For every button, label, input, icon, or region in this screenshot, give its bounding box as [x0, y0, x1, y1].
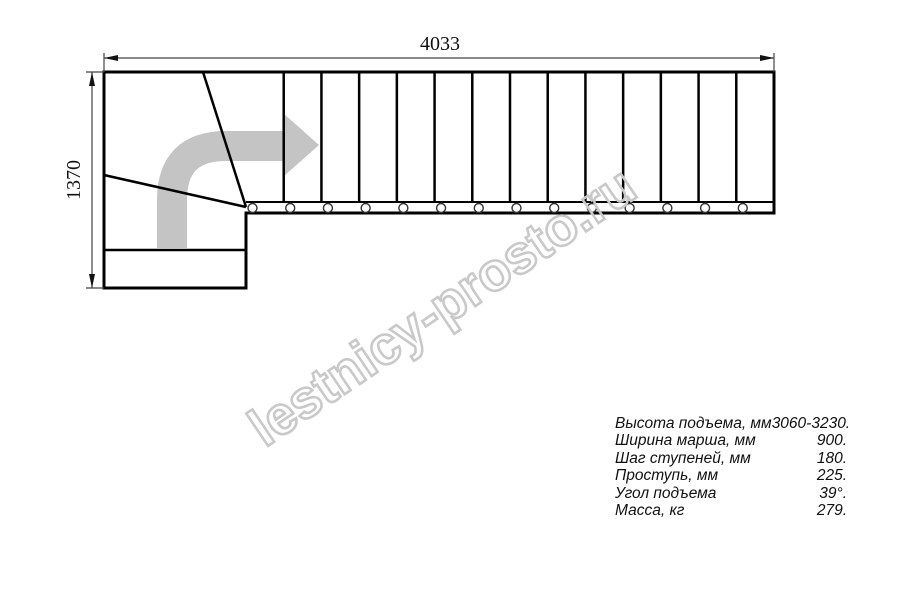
- baluster-circle: [663, 204, 672, 213]
- spec-value: 39°.: [819, 485, 847, 502]
- baluster-circle: [437, 204, 446, 213]
- spec-value: 900.: [817, 432, 847, 449]
- direction-arrow-head: [283, 113, 319, 177]
- dimension-arrow-right: [760, 55, 774, 61]
- dimension-arrow-left: [104, 55, 118, 61]
- staircase-outline: [104, 72, 774, 288]
- specs-table: Высота подъема, мм 3060-3230. Ширина мар…: [615, 415, 847, 519]
- spec-row: Высота подъема, мм 3060-3230.: [615, 415, 847, 432]
- baluster-circle: [512, 204, 521, 213]
- baluster-circle: [701, 204, 710, 213]
- spec-row: Масса, кг 279.: [615, 502, 847, 519]
- spec-row: Ширина марша, мм 900.: [615, 432, 847, 449]
- spec-label: Угол подъема: [615, 485, 716, 502]
- baluster-circle: [323, 204, 332, 213]
- spec-row: Угол подъема 39°.: [615, 485, 847, 502]
- spec-label: Шаг ступеней, мм: [615, 450, 751, 467]
- width-dimension-label: 1370: [63, 160, 85, 200]
- dimension-left: 1370: [63, 72, 104, 288]
- spec-value: 3060-3230.: [772, 415, 850, 432]
- baluster-circle: [474, 204, 483, 213]
- spec-value: 279.: [817, 502, 847, 519]
- baluster-circle: [361, 204, 370, 213]
- baluster-circle: [248, 204, 257, 213]
- spec-value: 225.: [817, 467, 847, 484]
- length-dimension-label: 4033: [420, 33, 460, 55]
- baluster-circles: [248, 204, 747, 213]
- spec-row: Шаг ступеней, мм 180.: [615, 450, 847, 467]
- spec-row: Проступь, мм 225.: [615, 467, 847, 484]
- watermark-text: lestnicy-prosto.ru: [238, 155, 646, 457]
- straight-step-lines: [284, 72, 737, 202]
- stair-drawing-page: 4033 1370 lestnicy-prosto.ru Высота подъ…: [0, 0, 900, 600]
- baluster-circle: [399, 204, 408, 213]
- direction-arrow-shaft: [172, 146, 285, 248]
- dimension-top: 4033: [104, 33, 774, 72]
- spec-label: Ширина марша, мм: [615, 432, 756, 449]
- baluster-circle: [738, 204, 747, 213]
- spec-label: Высота подъема, мм: [615, 415, 772, 432]
- spec-label: Масса, кг: [615, 502, 684, 519]
- dimension-arrow-bottom: [89, 274, 95, 288]
- spec-label: Проступь, мм: [615, 467, 718, 484]
- dimension-arrow-top: [89, 72, 95, 86]
- baluster-circle: [286, 204, 295, 213]
- spec-value: 180.: [817, 450, 847, 467]
